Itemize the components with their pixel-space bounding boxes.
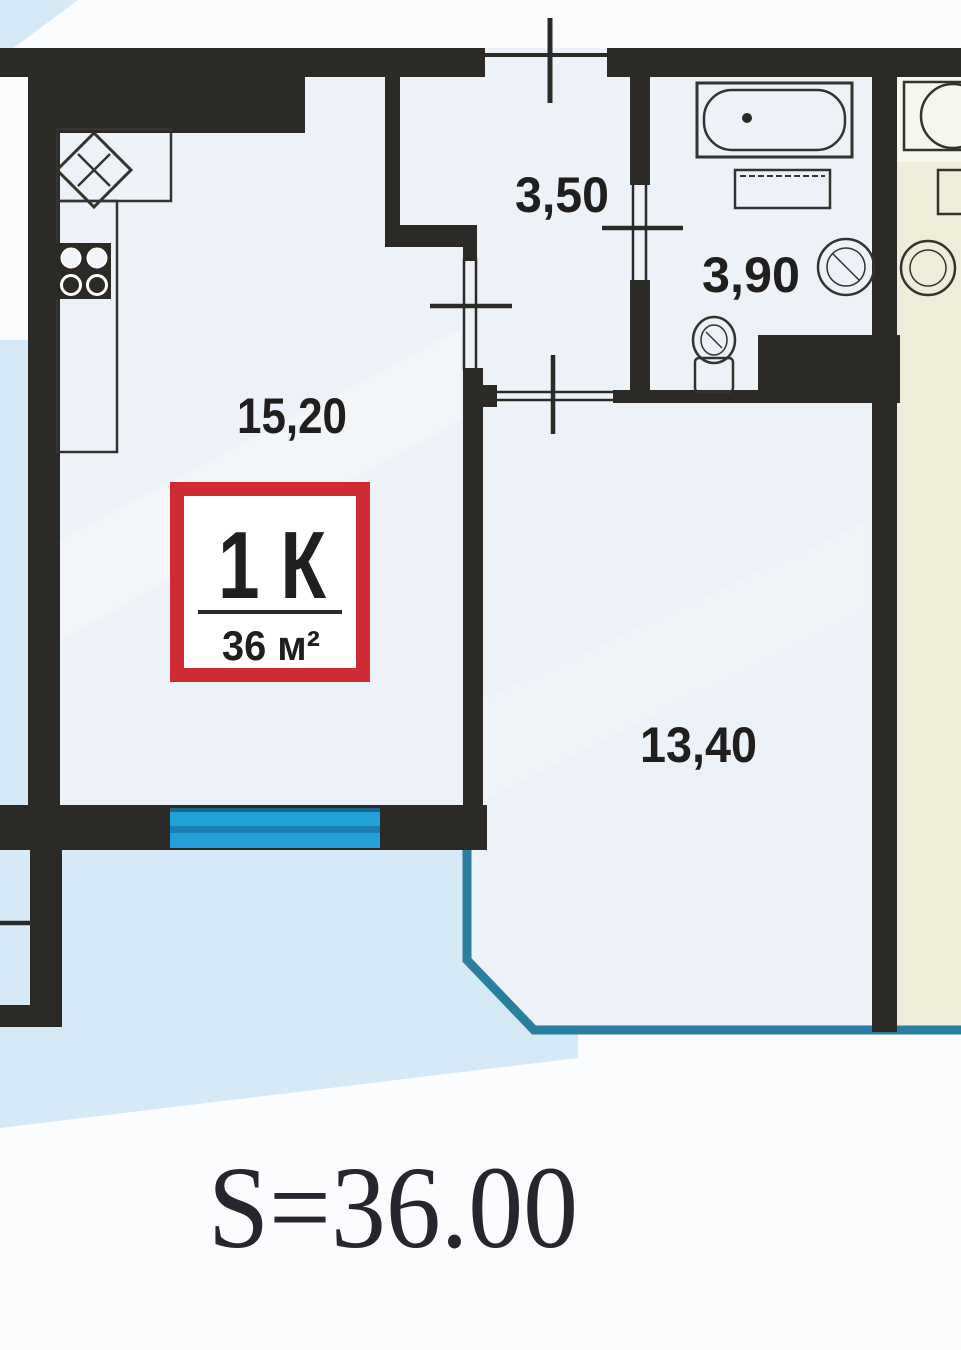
wall-bath-left-lower xyxy=(630,280,650,392)
wall-top-right xyxy=(607,48,961,77)
wall-kitchen-top-band xyxy=(28,77,305,133)
stove-icon xyxy=(56,243,111,299)
wall-top-left xyxy=(0,48,485,77)
wall-hall-left-upper xyxy=(385,77,400,237)
wall-left xyxy=(28,77,60,850)
bathroom-area-label: 3,90 xyxy=(702,247,800,303)
wall-hall-living-cap xyxy=(463,385,497,407)
floor-bay xyxy=(467,852,872,1032)
floor-plan-page: 1 К 36 м² 15,20 3,50 3,90 13,40 S=36.00 xyxy=(0,0,961,1350)
bathroom-sink-icon xyxy=(818,239,874,295)
floor-neighbor-room xyxy=(897,162,961,1032)
wall-hall-jog xyxy=(385,225,477,247)
floor-plan-drawing: 1 К 36 м² 15,20 3,50 3,90 13,40 S=36.00 xyxy=(0,0,961,1350)
kitchen-window xyxy=(170,808,380,848)
wall-kitchen-living xyxy=(463,368,483,850)
shade-left-strip xyxy=(0,340,28,852)
kitchen-area-label: 15,20 xyxy=(237,388,347,444)
hallway-area-label: 3,50 xyxy=(515,167,609,223)
kitchen-window-mullion xyxy=(170,826,380,833)
unit-label: 1 К 36 м² xyxy=(177,489,363,675)
unit-area-text: 36 м² xyxy=(222,622,320,669)
wall-right xyxy=(872,77,897,1032)
wall-bath-left-upper xyxy=(630,77,650,185)
wall-balcony-left xyxy=(30,850,62,1027)
kitchen-window-edge xyxy=(170,808,380,812)
total-area-label: S=36.00 xyxy=(208,1142,578,1273)
wall-balcony-foot xyxy=(0,1005,62,1027)
living-area-label: 13,40 xyxy=(640,717,757,773)
unit-type-text: 1 К xyxy=(218,512,326,619)
